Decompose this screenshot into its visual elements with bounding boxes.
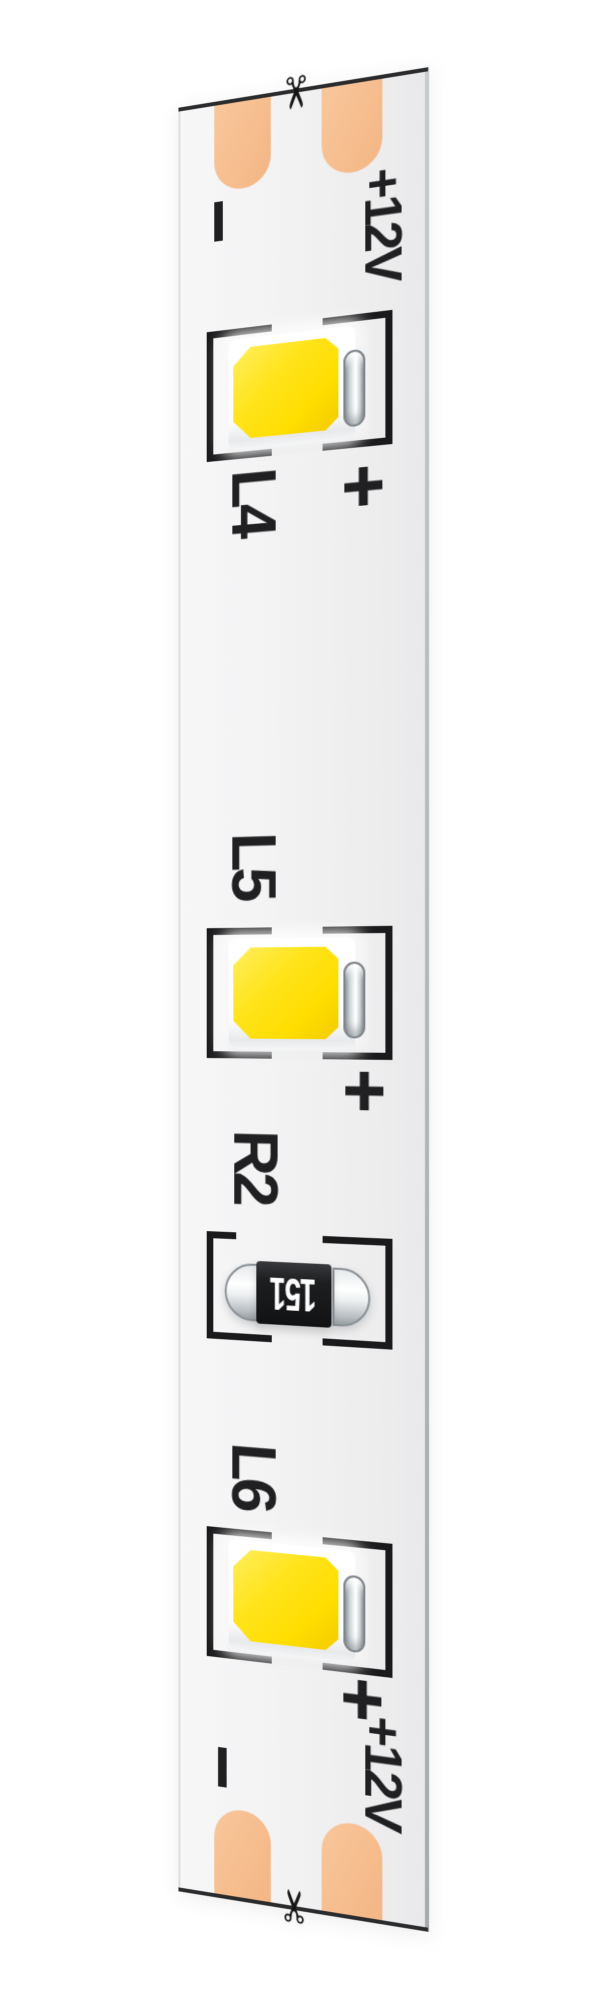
resistor-end-cap xyxy=(332,1268,370,1329)
led-emitter xyxy=(233,1548,338,1651)
led-electrode xyxy=(343,1574,365,1653)
component-ref-label: R2 xyxy=(229,1129,281,1204)
component-ref-label: L5 xyxy=(228,832,280,899)
component-ref-label: L4 xyxy=(228,466,280,537)
strip-left-edge xyxy=(178,108,180,1890)
led-emitter xyxy=(233,947,338,1040)
led-footprint xyxy=(207,1526,393,1678)
strip-right-edge xyxy=(425,67,429,1932)
led-package xyxy=(229,325,356,449)
solder-pad xyxy=(322,1819,383,1920)
scissors-icon: ✂ xyxy=(274,1880,319,1933)
resistor-code: 151 xyxy=(271,1266,317,1322)
led-emitter xyxy=(233,336,338,439)
plus-marker xyxy=(344,465,382,507)
product-render: ✂ +12V L4 L5 R2 xyxy=(0,0,600,2000)
led-package xyxy=(229,937,356,1048)
minus-marker xyxy=(218,1747,227,1788)
solder-pad xyxy=(214,97,271,193)
resistor-footprint: 151 xyxy=(207,1231,393,1350)
led-electrode xyxy=(343,349,365,428)
solder-pad xyxy=(322,79,383,177)
voltage-label: +12V xyxy=(360,165,402,283)
led-footprint xyxy=(207,310,393,462)
solder-pad xyxy=(214,1806,271,1902)
minus-marker xyxy=(214,201,223,242)
resistor-body: 151 xyxy=(256,1261,331,1328)
led-electrode xyxy=(343,962,365,1039)
component-ref-label: L6 xyxy=(228,1441,280,1512)
plus-marker xyxy=(345,1072,383,1111)
led-strip: ✂ +12V L4 L5 R2 xyxy=(180,72,425,1927)
scissors-icon: ✂ xyxy=(272,66,317,119)
led-footprint xyxy=(207,926,393,1060)
led-package xyxy=(229,1539,356,1662)
voltage-label: +12V xyxy=(360,1714,402,1832)
